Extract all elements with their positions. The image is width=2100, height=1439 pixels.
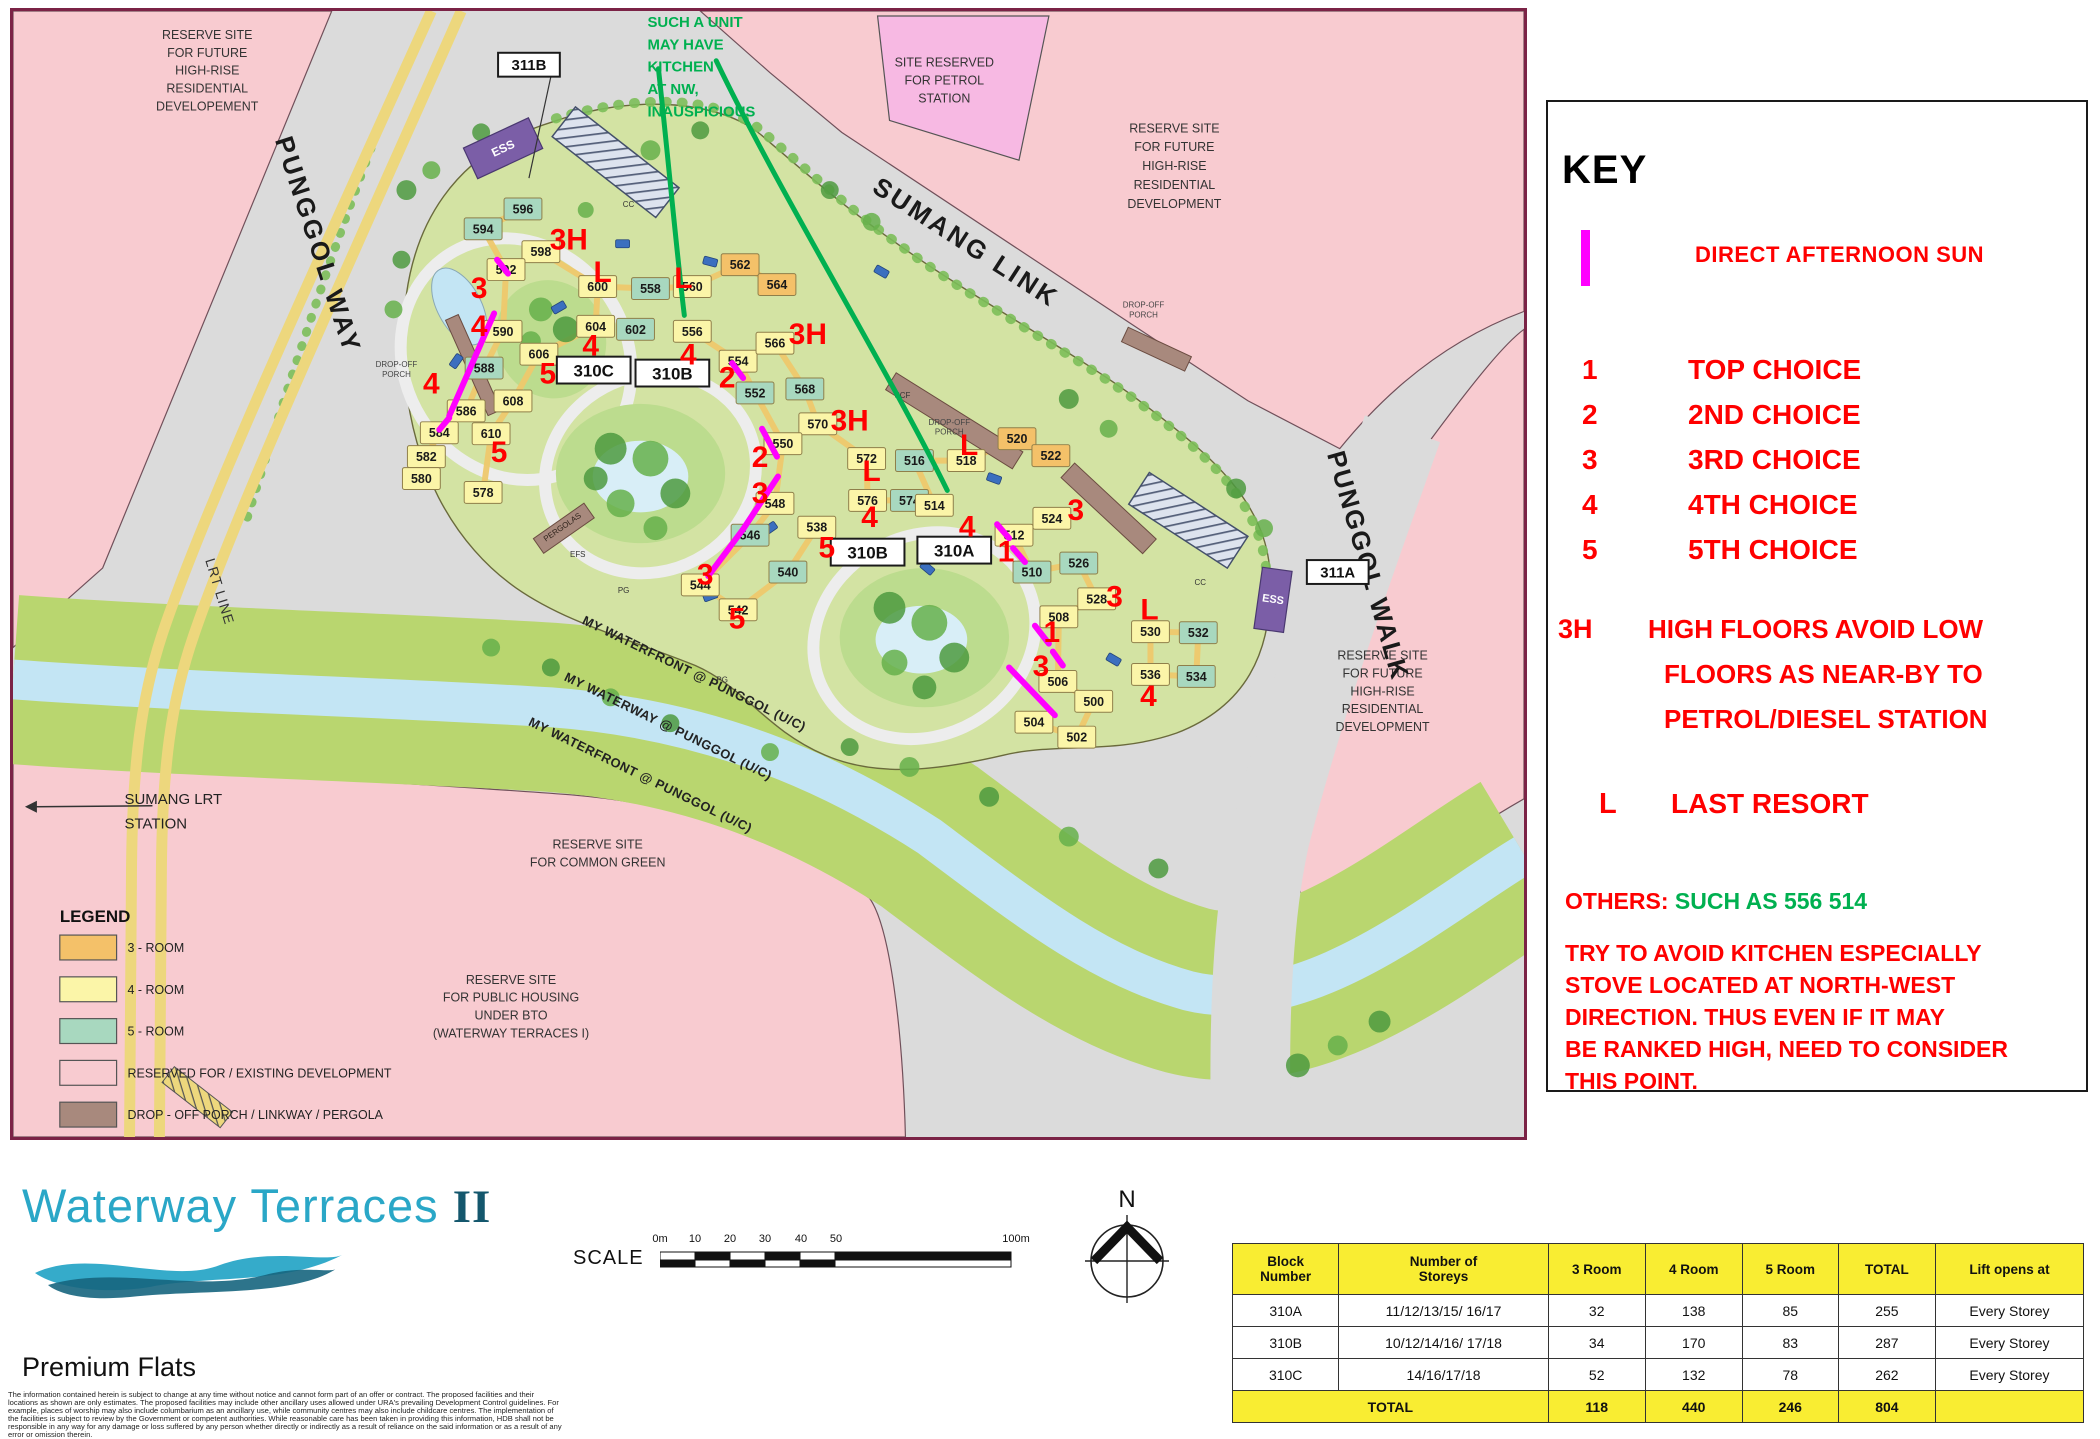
scale-tick-label: 30 (759, 1233, 771, 1245)
table-cell: 287 (1838, 1327, 1935, 1359)
map-label-line: RESERVE SITE (1129, 121, 1219, 135)
map-label-line: STATION (918, 92, 970, 106)
logo-wave-icon (30, 1243, 350, 1303)
table-cell: Every Storey (1935, 1359, 2083, 1391)
table-cell: 255 (1838, 1295, 1935, 1327)
green-note-line: AT NW, (647, 81, 698, 98)
tree (874, 592, 906, 624)
block-602: 602 (617, 318, 655, 340)
map-label-efs: EFS (570, 550, 585, 559)
legend-item-label: 4 - ROOM (128, 983, 185, 997)
block-568: 568 (786, 378, 824, 400)
block-number: 578 (473, 486, 494, 500)
map-label-line: HIGH-RISE (1350, 684, 1414, 698)
scale-tick-label: 0m (652, 1233, 667, 1245)
legend-item-label: RESERVED FOR / EXISTING DEVELOPMENT (128, 1066, 392, 1080)
table-cell: 262 (1838, 1359, 1935, 1391)
block-number: 566 (765, 337, 786, 351)
key-3h-line: HIGH FLOORS AVOID LOW (1648, 614, 1983, 645)
choice-row-2: 22ND CHOICE (1548, 399, 2086, 435)
map-label-line: PORCH (382, 370, 411, 379)
table-cell: 310C (1233, 1359, 1339, 1391)
map-label-cc-1: CC (623, 200, 635, 209)
map-label-line: UNDER BTO (474, 1009, 547, 1023)
block-552: 552 (736, 382, 774, 404)
block-number: 514 (924, 499, 945, 513)
id-tag-label: 310B (847, 544, 887, 563)
annotation-L: L (594, 256, 612, 289)
block-540: 540 (769, 561, 807, 583)
table-cell: 14/16/17/18 (1339, 1359, 1548, 1391)
block-532: 532 (1179, 622, 1217, 644)
block-number: 564 (767, 278, 788, 292)
map-label-pg-1: PG (618, 586, 630, 595)
tree (939, 643, 969, 673)
tree (1100, 420, 1118, 438)
table-cell: 32 (1548, 1295, 1645, 1327)
map-label-line: (WATERWAY TERRACES I) (433, 1027, 589, 1041)
block-number: 586 (456, 404, 477, 418)
annotation-2: 2 (752, 441, 769, 474)
annotation-4: 4 (1140, 680, 1157, 713)
annotation-4: 4 (423, 368, 440, 401)
compass-n-label: N (1118, 1186, 1135, 1213)
compass: N (1072, 1185, 1182, 1310)
map-label-line: DEVELOPMENT (1336, 720, 1430, 734)
map-label-line: RESIDENTIAL (1134, 178, 1216, 192)
tree (553, 316, 579, 342)
vehicle (616, 240, 630, 248)
block-number: 568 (794, 382, 815, 396)
table-cell: Every Storey (1935, 1327, 2083, 1359)
block-number: 526 (1068, 557, 1089, 571)
annotation-L: L (674, 262, 692, 295)
table-cell: 138 (1645, 1295, 1742, 1327)
block-578: 578 (464, 481, 502, 503)
sun-line-label: DIRECT AFTERNOON SUN (1695, 242, 1984, 268)
tree (482, 639, 500, 657)
table-header-cell: TOTAL (1838, 1244, 1935, 1295)
map-label-line: RESERVE SITE (552, 838, 642, 852)
choice-label: 4TH CHOICE (1688, 489, 1858, 521)
tree (821, 181, 839, 199)
green-note-line: MAY HAVE (647, 36, 723, 53)
key-3h-line: PETROL/DIESEL STATION (1664, 704, 1988, 735)
tree (979, 787, 999, 807)
table-header-cell: 5 Room (1742, 1244, 1838, 1295)
tree (633, 441, 669, 477)
tree (761, 743, 779, 761)
legend-swatch (60, 1102, 117, 1127)
table-header-cell: 4 Room (1645, 1244, 1742, 1295)
choice-symbol: 4 (1582, 489, 1598, 521)
annotation-3: 3 (752, 477, 769, 510)
id-tag-label: 311A (1320, 565, 1355, 582)
table-cell: 310B (1233, 1327, 1339, 1359)
key-3h-symbol: 3H (1558, 614, 1593, 645)
block-596: 596 (504, 198, 542, 220)
block-number: 520 (1007, 432, 1028, 446)
annotation-3: 3 (697, 559, 714, 592)
map-label-line: RESIDENTIAL (166, 82, 248, 96)
table-cell: 34 (1548, 1327, 1645, 1359)
id-tag-label: 310A (934, 542, 974, 561)
annotation-3: 3 (1033, 650, 1050, 683)
tree (899, 757, 919, 777)
logo-subtitle: Premium Flats (22, 1352, 196, 1383)
id-tag-310B: 310B (636, 360, 710, 387)
block-number: 506 (1047, 675, 1068, 689)
legend-swatch (60, 977, 117, 1002)
block-522: 522 (1032, 445, 1070, 467)
tree (1255, 519, 1273, 537)
block-number: 500 (1083, 695, 1104, 709)
scale-tick-label: 50 (830, 1233, 842, 1245)
choice-symbol: 3 (1582, 444, 1598, 476)
block-number: 524 (1041, 512, 1062, 526)
tree (529, 297, 553, 321)
block-number: 590 (493, 325, 514, 339)
block-562: 562 (721, 254, 759, 276)
legend-swatch (60, 1019, 117, 1044)
others-prefix: OTHERS: (1565, 888, 1675, 914)
id-tag-label: 310C (573, 362, 613, 381)
map-label-line: CC (623, 200, 635, 209)
others-highlight: SUCH AS 556 514 (1675, 888, 1867, 914)
tree (392, 251, 410, 269)
annotation-L: L (960, 429, 978, 462)
tree (578, 202, 594, 218)
choice-label: 2ND CHOICE (1688, 399, 1861, 431)
tree (595, 433, 627, 465)
block-520: 520 (998, 428, 1036, 450)
block-number: 540 (778, 566, 799, 580)
map-label-line: DROP-OFF (1123, 300, 1165, 309)
map-label-line: DROP-OFF (929, 418, 971, 427)
block-500: 500 (1075, 690, 1113, 712)
screenshot-root: 5965945985926005585605625646026045565545… (0, 0, 2100, 1439)
table-cell: 52 (1548, 1359, 1645, 1391)
tree (607, 489, 635, 517)
map-label-line: FOR PUBLIC HOUSING (443, 991, 579, 1005)
map-label-pg-2: PG (716, 675, 728, 684)
block-558: 558 (632, 278, 670, 300)
table-row: 310A11/12/13/15/ 16/173213885255Every St… (1233, 1295, 2084, 1327)
tree (1328, 1036, 1348, 1056)
choice-row-4: 44TH CHOICE (1548, 489, 2086, 525)
table-total-label: TOTAL (1233, 1391, 1549, 1423)
disclaimer: The information contained herein is subj… (8, 1391, 562, 1438)
block-504: 504 (1015, 711, 1053, 733)
annotation-3H: 3H (789, 318, 827, 351)
map-label-line: HIGH-RISE (1142, 159, 1206, 173)
table-cell: 10/12/14/16/ 17/18 (1339, 1327, 1548, 1359)
tree (912, 675, 936, 699)
site-map: 5965945985926005585605625646026045565545… (13, 11, 1524, 1137)
legend-title: LEGEND (60, 907, 131, 926)
tree (1148, 858, 1168, 878)
choice-symbol: 5 (1582, 534, 1598, 566)
table-cell: 11/12/13/15/ 16/17 (1339, 1295, 1548, 1327)
block-number: 570 (807, 417, 828, 431)
choice-row-3: 33RD CHOICE (1548, 444, 2086, 480)
block-526: 526 (1060, 552, 1098, 574)
map-label-line: DROP-OFF (376, 360, 418, 369)
key-panel: KEY DIRECT AFTERNOON SUN 1TOP CHOICE22ND… (1546, 100, 2088, 1092)
annotation-4: 4 (582, 330, 599, 363)
key-others-line: STOVE LOCATED AT NORTH-WEST (1565, 972, 1955, 999)
choice-label: TOP CHOICE (1688, 354, 1861, 386)
choice-label: 3RD CHOICE (1688, 444, 1861, 476)
annotation-1: 1 (998, 536, 1015, 569)
map-label-line: HIGH-RISE (175, 64, 239, 78)
tree (660, 479, 690, 509)
annotation-5: 5 (818, 532, 835, 565)
map-label-line: SUMANG LRT (125, 791, 223, 808)
tree (385, 300, 403, 318)
annotation-5: 5 (491, 436, 508, 469)
block-number: 532 (1188, 626, 1209, 640)
block-582: 582 (407, 446, 445, 468)
block-number: 502 (1066, 731, 1087, 745)
table-total-cell: 440 (1645, 1391, 1742, 1423)
choice-label: 5TH CHOICE (1688, 534, 1858, 566)
tree (1059, 389, 1079, 409)
table-header-row: Block NumberNumber of Storeys3 Room4 Roo… (1233, 1244, 2084, 1295)
block-number: 562 (730, 258, 751, 272)
table-row: 310B10/12/14/16/ 17/183417083287Every St… (1233, 1327, 2084, 1359)
key-last-resort-label: LAST RESORT (1671, 788, 1869, 820)
block-number: 504 (1024, 716, 1045, 730)
unit-summary-table: Block NumberNumber of Storeys3 Room4 Roo… (1232, 1243, 2084, 1423)
annotation-4: 4 (861, 501, 878, 534)
tree (1059, 827, 1079, 847)
scale-tick-label: 20 (724, 1233, 736, 1245)
annotation-4: 4 (680, 339, 697, 372)
map-label-line: RESIDENTIAL (1342, 702, 1424, 716)
table-header-cell: Number of Storeys (1339, 1244, 1548, 1295)
map-label-line: PG (618, 586, 630, 595)
block-number: 528 (1086, 592, 1107, 606)
key-others-line: TRY TO AVOID KITCHEN ESPECIALLY (1565, 940, 1982, 967)
id-tag-310B: 310B (831, 539, 905, 566)
map-label-line: PG (716, 675, 728, 684)
block-number: 598 (531, 245, 552, 259)
id-tag-label: 311B (512, 57, 547, 74)
key-others-heading: OTHERS: SUCH AS 556 514 (1565, 888, 1867, 915)
table-total-row: TOTAL118440246804 (1233, 1391, 2084, 1423)
block-number: 534 (1186, 670, 1207, 684)
id-tag-310A: 310A (917, 537, 991, 564)
block-number: 530 (1140, 625, 1161, 639)
sun-line-swatch (1581, 230, 1590, 286)
annotation-2: 2 (719, 362, 736, 395)
annotation-1: 1 (1044, 616, 1061, 649)
table-row: 310C14/16/17/185213278262Every Storey (1233, 1359, 2084, 1391)
block-594: 594 (464, 218, 502, 240)
table-total-cell: 804 (1838, 1391, 1935, 1423)
id-tag-311A: 311A (1307, 560, 1369, 584)
block-number: 596 (513, 202, 534, 216)
tree (643, 516, 667, 540)
tree (1286, 1053, 1310, 1077)
disclaimer-line: error or omission therein. (8, 1431, 562, 1439)
block-number: 580 (411, 472, 432, 486)
block-510: 510 (1013, 561, 1051, 583)
map-label-line: DEVELOPEMENT (156, 99, 259, 113)
annotation-3H: 3H (831, 404, 869, 437)
annotation-L: L (862, 455, 880, 488)
key-title: KEY (1562, 148, 1647, 193)
map-label-line: STATION (125, 816, 187, 833)
choice-row-5: 55TH CHOICE (1548, 534, 2086, 570)
tree (542, 659, 560, 677)
key-3h-line: FLOORS AS NEAR-BY TO (1664, 659, 1983, 690)
legend-item-label: 3 - ROOM (128, 941, 185, 955)
block-524: 524 (1033, 507, 1071, 529)
tree (691, 121, 709, 139)
legend-item-label: DROP - OFF PORCH / LINKWAY / PERGOLA (128, 1108, 384, 1122)
block-number: 556 (682, 325, 703, 339)
map-label-line: FOR COMMON GREEN (530, 855, 666, 869)
id-tag-311B: 311B (498, 53, 560, 77)
scale-tick-label: 100m (1002, 1233, 1030, 1245)
table-header-cell: 3 Room (1548, 1244, 1645, 1295)
annotation-5: 5 (729, 602, 746, 635)
tree (863, 213, 881, 231)
key-others-line: THIS POINT. (1565, 1068, 1698, 1095)
tree (641, 140, 661, 160)
table-header-cell: Block Number (1233, 1244, 1339, 1295)
annotation-3: 3 (1106, 580, 1123, 613)
block-number: 516 (904, 454, 925, 468)
annotation-3: 3 (1067, 494, 1084, 527)
block-number: 552 (745, 386, 766, 400)
block-502: 502 (1058, 726, 1096, 748)
block-564: 564 (758, 274, 796, 296)
choice-symbol: 2 (1582, 399, 1598, 431)
tree (841, 738, 859, 756)
map-label-line: FOR PETROL (905, 74, 985, 88)
map-label-line: FOR FUTURE (1134, 140, 1214, 154)
annotation-4: 4 (471, 310, 488, 343)
tree (911, 605, 947, 641)
table-total-cell (1935, 1391, 2083, 1423)
map-label-line: SITE RESERVED (895, 56, 994, 70)
table-cell: Every Storey (1935, 1295, 2083, 1327)
tree (1226, 479, 1246, 499)
map-label-line: RESERVE SITE (162, 28, 252, 42)
site-map-panel: 5965945985926005585605625646026045565545… (10, 8, 1527, 1140)
block-number: 608 (503, 394, 524, 408)
legend-item-label: 5 - ROOM (128, 1025, 185, 1039)
key-last-resort-symbol: L (1599, 788, 1617, 821)
block-608: 608 (494, 390, 532, 412)
table-cell: 78 (1742, 1359, 1838, 1391)
legend-swatch (60, 935, 117, 960)
table-total-cell: 118 (1548, 1391, 1645, 1423)
table-cell: 85 (1742, 1295, 1838, 1327)
annotation-3: 3 (471, 272, 488, 305)
block-number: 558 (640, 282, 661, 296)
table-cell: 310A (1233, 1295, 1339, 1327)
annotation-L: L (1140, 593, 1158, 626)
map-label-line: CC (1195, 578, 1207, 587)
block-number: 510 (1022, 566, 1043, 580)
key-others-line: DIRECTION. THUS EVEN IF IT MAY (1565, 1004, 1945, 1031)
block-number: 594 (473, 222, 494, 236)
green-note-line: SUCH A UNIT (647, 14, 742, 31)
choice-row-1: 1TOP CHOICE (1548, 354, 2086, 390)
block-514: 514 (915, 494, 953, 516)
logo-text: Waterway Terraces (22, 1179, 453, 1232)
block-534: 534 (1177, 666, 1215, 688)
block-number: 522 (1040, 449, 1061, 463)
block-580: 580 (402, 468, 440, 490)
tree (1369, 1011, 1391, 1033)
annotation-3H: 3H (550, 223, 588, 256)
map-label-line: PORCH (1129, 310, 1158, 319)
scale-label: SCALE (573, 1247, 644, 1270)
table-cell: 170 (1645, 1327, 1742, 1359)
scale-bar (660, 1250, 1016, 1272)
map-label-cc-2: CC (1195, 578, 1207, 587)
tree (422, 161, 440, 179)
map-label-line: EFS (570, 550, 585, 559)
logo-numeral: II (453, 1181, 492, 1233)
tree (882, 650, 908, 676)
map-label-line: RESERVE SITE (466, 973, 556, 987)
table-cell: 132 (1645, 1359, 1742, 1391)
block-number: 602 (625, 323, 646, 337)
table-cell: 83 (1742, 1327, 1838, 1359)
map-label-line: DEVELOPMENT (1127, 197, 1221, 211)
annotation-5: 5 (540, 358, 557, 391)
legend-swatch (60, 1060, 117, 1085)
scale-tick-label: 40 (795, 1233, 807, 1245)
map-label-line: FOR FUTURE (167, 46, 247, 60)
tree (584, 467, 608, 491)
scale-tick-label: 10 (689, 1233, 701, 1245)
choice-symbol: 1 (1582, 354, 1598, 386)
table-header-cell: Lift opens at (1935, 1244, 2083, 1295)
table-total-cell: 246 (1742, 1391, 1838, 1423)
logo: Waterway Terraces II (22, 1178, 491, 1234)
block-number: 588 (474, 362, 495, 376)
block-number: 582 (416, 450, 437, 464)
annotation-4: 4 (959, 511, 976, 544)
tree (396, 180, 416, 200)
key-others-line: BE RANKED HIGH, NEED TO CONSIDER (1565, 1036, 2008, 1063)
